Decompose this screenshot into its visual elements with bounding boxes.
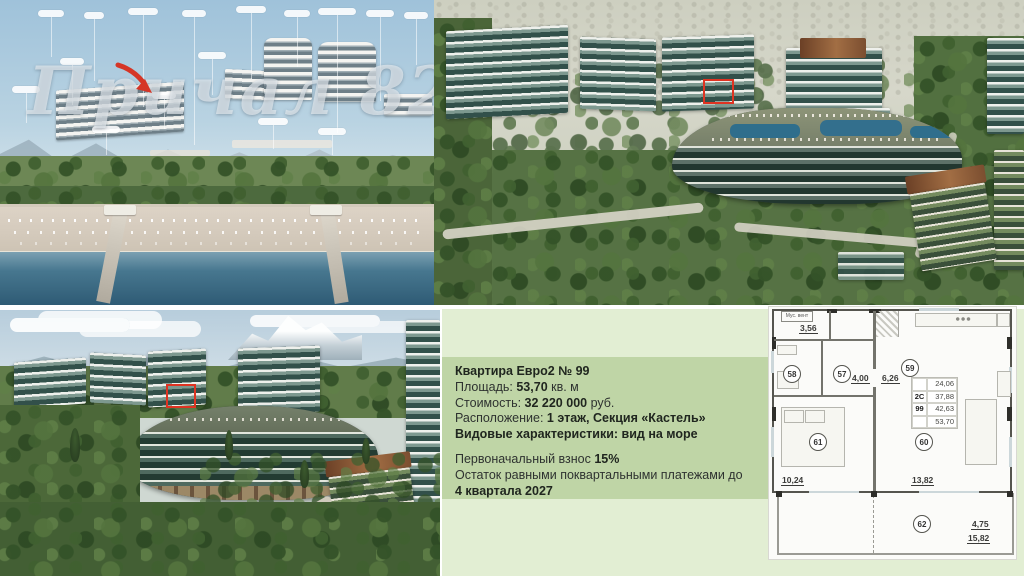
room-number: 58 [783, 365, 801, 383]
room-number: 61 [809, 433, 827, 451]
room-area: 4,75 [971, 519, 990, 530]
info-table-cell [912, 416, 927, 429]
info-table-total: 24,06 [927, 378, 957, 391]
building-body [910, 182, 997, 271]
plan-window [919, 308, 959, 311]
cypress-tree [362, 438, 370, 464]
apartment-info-panel: Квартира Евро2 № 99 Площадь: 53,70 кв. м… [442, 357, 768, 499]
red-arrow-icon [112, 60, 160, 102]
apartment-title: Квартира Евро2 № 99 [455, 364, 760, 380]
terrace-column [871, 491, 877, 497]
sink [777, 345, 797, 355]
vent-label-box: Мус. вент [781, 311, 813, 322]
plan-window [771, 427, 774, 457]
apartment-building [14, 357, 86, 408]
apartment-building [90, 353, 146, 406]
room-number: 60 [915, 433, 933, 451]
terrace-column [1007, 491, 1013, 497]
callout-pill [128, 8, 158, 15]
pillow [805, 410, 825, 423]
masterplan-photo: Причал 82 [0, 0, 434, 305]
plan-wall-pier [1007, 337, 1012, 349]
apartment-building [580, 37, 656, 112]
plan-wall [873, 387, 876, 491]
presentation-slide: Причал 82 [0, 0, 1024, 576]
callout-pills [0, 0, 434, 305]
apartment-price-line: Стоимость: 32 220 000 руб. [455, 396, 760, 412]
plan-wall-pier [1007, 407, 1012, 421]
apartment-location-line: Расположение: 1 этаж, Секция «Кастель» [455, 411, 760, 427]
complex-render-photo [434, 0, 1024, 305]
info-table-number: 99 [912, 403, 927, 416]
cloud [250, 315, 380, 327]
apartment-highlight-box [703, 79, 734, 104]
apartment-area-line: Площадь: 53,70 кв. м [455, 380, 760, 396]
building-block [838, 252, 904, 280]
complex-render-photo-2 [0, 310, 440, 576]
info-table-total: 37,88 [927, 391, 957, 404]
plan-wall [829, 311, 831, 339]
sofa [965, 399, 997, 465]
plan-wall-pier [772, 407, 776, 421]
wardrobe [997, 371, 1011, 397]
apartment-building [446, 25, 568, 119]
callout-pill [366, 10, 394, 17]
tree-band [0, 502, 440, 576]
cypress-tree [300, 460, 309, 488]
rooftop-pool [910, 126, 956, 138]
plan-window [771, 351, 774, 373]
info-table-cell [912, 378, 927, 391]
room-number: 59 [901, 359, 919, 377]
tower-roof [800, 38, 866, 58]
room-area: 15,82 [967, 533, 990, 544]
deck-umbrellas [700, 114, 924, 117]
apartment-building [238, 346, 320, 415]
room-area: 3,56 [799, 323, 818, 334]
installment-line: Остаток равными поквартальными платежами… [455, 468, 760, 484]
apartment-info-table: 24,06 2С 37,88 99 42,63 53,70 [911, 377, 958, 429]
stove-burners [955, 316, 973, 322]
callout-pill [318, 8, 356, 15]
apartment-view-line: Видовые характеристики: вид на море [455, 427, 760, 443]
apartment-highlight-box [166, 384, 196, 408]
pillow [784, 410, 804, 423]
callout-pill [182, 10, 206, 17]
terrace-divider [873, 495, 874, 553]
callout-pill [84, 12, 104, 19]
terrace-column [776, 491, 782, 497]
callout-pill [284, 10, 310, 17]
floor-plan: Мус. вент 58 57 59 61 60 62 3,56 4,00 6,… [768, 306, 1017, 560]
apartment-building [994, 150, 1024, 270]
cypress-tree [70, 428, 80, 462]
watermark-text: Причал 82 [28, 52, 434, 130]
callout-pill [404, 12, 428, 19]
room-number: 57 [833, 365, 851, 383]
plan-wall [774, 395, 874, 397]
cypress-tree [225, 430, 233, 460]
fridge [997, 313, 1010, 327]
info-table-total: 53,70 [927, 416, 957, 429]
callout-pill [236, 6, 266, 13]
apartment-building [987, 38, 1024, 134]
rooftop-pool [820, 120, 902, 136]
deck-umbrellas [712, 138, 942, 141]
plan-wall [821, 341, 823, 395]
room-area: 10,24 [781, 475, 804, 486]
room-number: 62 [913, 515, 931, 533]
plan-wall [774, 339, 874, 341]
info-table-total: 42,63 [927, 403, 957, 416]
plan-window [1009, 437, 1012, 467]
installment-deadline: 4 квартала 2027 [455, 484, 760, 500]
room-area: 4,00 [851, 373, 870, 384]
copper-roof-building [905, 164, 999, 273]
terrace-furniture [146, 418, 356, 421]
stairwell [876, 311, 899, 337]
callout-pill [38, 10, 64, 17]
room-area: 13,82 [911, 475, 934, 486]
info-table-type: 2С [912, 391, 927, 404]
rooftop-pool [730, 124, 800, 138]
cloud [10, 318, 130, 332]
room-area: 6,26 [881, 373, 900, 384]
downpayment-line: Первоначальный взнос 15% [455, 452, 760, 468]
